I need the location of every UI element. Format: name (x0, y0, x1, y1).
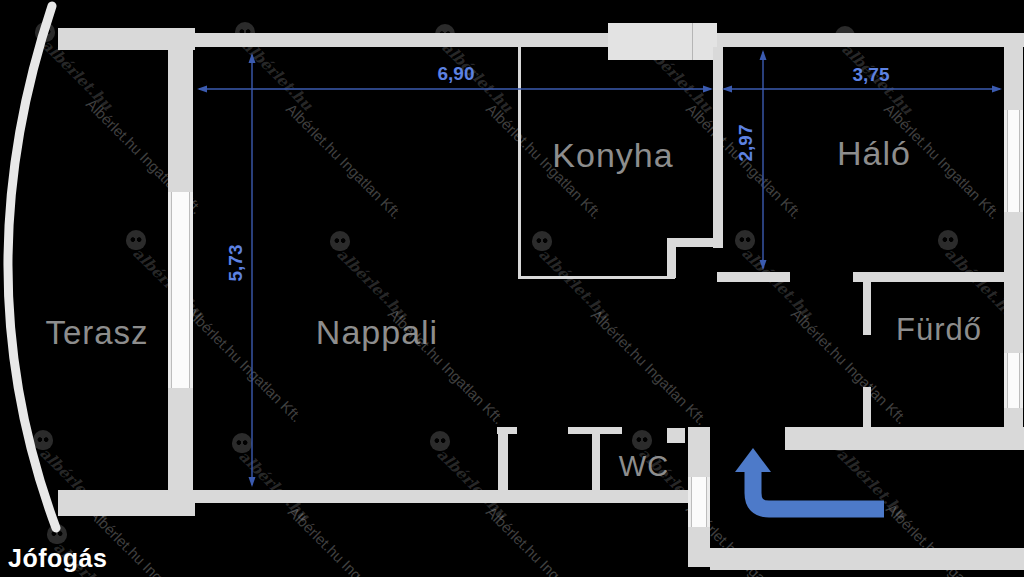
wall-door-stub2-cap (568, 427, 622, 434)
wall-corridor-bottom (193, 490, 688, 503)
shaft-divider-line (692, 23, 693, 60)
wall-door-stub2-stem (592, 434, 600, 490)
wall-konyha-halo (713, 47, 723, 248)
dim-label-3-75: 3,75 (853, 64, 890, 86)
dim-label-5-73: 5,73 (225, 245, 247, 282)
floor-plan-canvas: Albérlet.hu Ingatlan Kft.Albérlet.hu Ing… (0, 0, 1024, 577)
wall-entry-top (785, 427, 1024, 450)
wall-door-stub1-cap (497, 427, 517, 434)
wall-terasz-bottom (58, 490, 195, 516)
wall-top-right (717, 33, 1024, 47)
dim-label-6-90: 6,90 (438, 63, 475, 85)
room-label-terasz: Terasz (45, 314, 148, 352)
dim-arrow-top-2-97 (760, 50, 767, 60)
wall-halo-bottom-left (717, 272, 790, 282)
dim-arrow-left-6-90 (197, 86, 207, 93)
watermark-text-long: Albérlet.hu Ingatlan Kft. (788, 305, 910, 427)
watermark-text-long: Albérlet.hu Ingatlan Kft. (283, 100, 405, 222)
room-label-konyha: Konyha (552, 136, 673, 175)
wall-door-stub1-stem (498, 434, 508, 490)
room-label-nappali: Nappali (316, 313, 438, 352)
wall-furdo-left-lower (863, 387, 871, 430)
wall-shaft-box (608, 23, 717, 60)
wall-top-main (193, 33, 608, 47)
wall-furdo-left-upper (863, 282, 871, 335)
room-label-halo: Háló (837, 134, 911, 173)
watermark-text-long: Albérlet.hu Ingatlan Kft. (588, 306, 710, 428)
halo-window (1004, 110, 1023, 212)
wall-wc-stub-cap (667, 428, 685, 443)
wall-konyha-left-thin (518, 47, 521, 278)
wall-halo-bottom-right (853, 272, 1004, 282)
wall-konyha-nook-h (667, 238, 713, 247)
wall-bottom-outer (710, 548, 1024, 570)
entry-door (688, 477, 710, 527)
dim-arrow-right-3-75 (992, 86, 1002, 93)
room-label-wc: WC (619, 450, 669, 483)
watermark-text-long: Albérlet.hu Ingatlan Kft. (183, 303, 305, 425)
jofogas-logo: Jófogás (8, 544, 107, 573)
watermark-text-short: albérlet.hu (738, 244, 816, 322)
watermark-text-short: albérlet.hu (333, 245, 411, 323)
entrance-arrow-head (735, 448, 771, 472)
watermark-text-short: albérlet.hu (235, 447, 313, 525)
room-label-furdo: Fürdő (896, 312, 982, 348)
terasz-window (168, 192, 193, 388)
watermark-text-short: albérlet.hu (833, 445, 911, 523)
dim-arrow-left-3-75 (722, 86, 732, 93)
watermark-text-short: albérlet.hu (238, 36, 316, 114)
watermark-text-short: albérlet.hu (535, 245, 613, 323)
furdo-window (1004, 353, 1023, 408)
wall-konyha-bottom-thin (518, 276, 675, 279)
dim-label-2-97: 2,97 (735, 125, 757, 162)
